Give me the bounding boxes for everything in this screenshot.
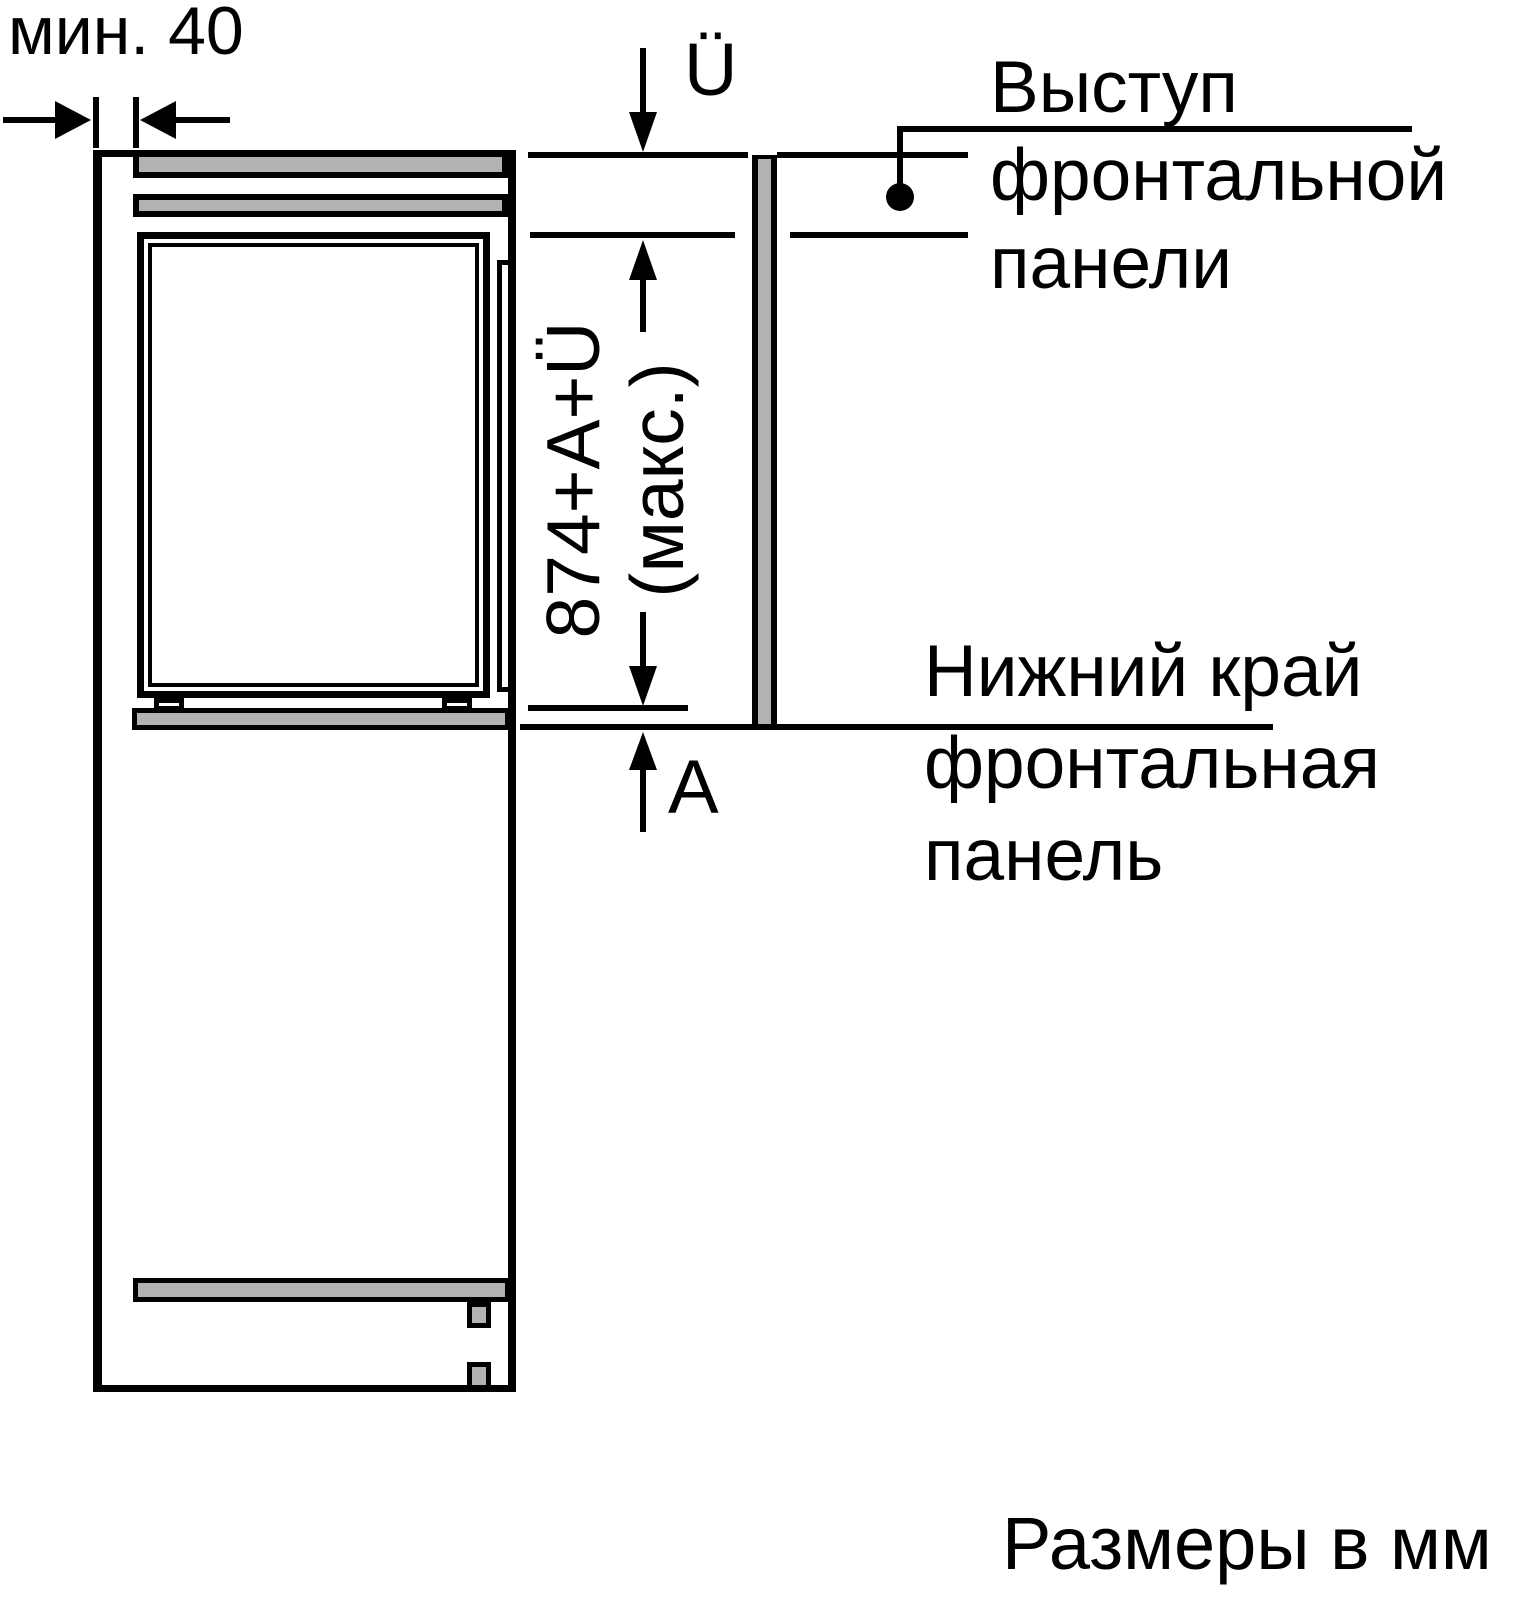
min-gap-label: мин. 40	[8, 0, 244, 66]
callout-point-icon	[886, 183, 914, 211]
worktop-top-reference-line-right	[777, 152, 968, 158]
min-gap-dim-line-left	[3, 117, 57, 123]
cabinet-bottom-edge	[93, 1385, 516, 1392]
min-gap-dim-line-right	[176, 117, 230, 123]
min-gap-extension-tick-left	[93, 97, 99, 148]
appliance-door-inner-frame	[148, 243, 479, 687]
spacer-block-upper	[467, 1302, 491, 1328]
dim-arrowhead-left-icon	[140, 101, 176, 139]
overhang-label: Ü	[684, 30, 737, 110]
front-panel-overhang-callout: Выступ фронтальной панели	[990, 44, 1447, 308]
panel-top-reference-line-right	[790, 232, 968, 238]
door-side-gap-strip	[497, 260, 508, 692]
worktop-top-reference-line-left	[528, 152, 748, 158]
plinth-height-label: A	[668, 748, 719, 828]
panel-top-reference-line-left	[530, 232, 735, 238]
diagram-canvas: мин. 40 Ü 874+A+Ü (макс.) A Выс	[0, 0, 1537, 1600]
dim-arrowhead-up-icon	[629, 732, 657, 770]
front-panel-lower-edge-callout: Нижний край фронтальная панель	[924, 626, 1380, 902]
plinth-height-dim-line	[640, 766, 646, 832]
units-note: Размеры в мм	[1002, 1504, 1492, 1584]
dim-arrowhead-down-icon	[629, 112, 657, 152]
upper-shelf-bar	[133, 194, 508, 217]
front-panel-bar	[752, 155, 777, 727]
cabinet-left-wall	[93, 150, 102, 1392]
worktop-panel-bar	[133, 151, 508, 178]
niche-floor-bar	[132, 708, 510, 730]
min-gap-extension-tick-right	[133, 97, 139, 148]
dim-arrowhead-right-icon	[55, 101, 91, 139]
cabinet-right-wall	[508, 150, 516, 1392]
max-height-label: 874+A+Ü (макс.)	[531, 250, 703, 710]
max-height-dim-line-bottom	[640, 612, 646, 668]
dim-arrowhead-down-icon	[629, 666, 657, 706]
spacer-block-lower	[467, 1362, 491, 1390]
plinth-bar	[133, 1278, 510, 1302]
overhang-dim-line	[640, 48, 646, 116]
